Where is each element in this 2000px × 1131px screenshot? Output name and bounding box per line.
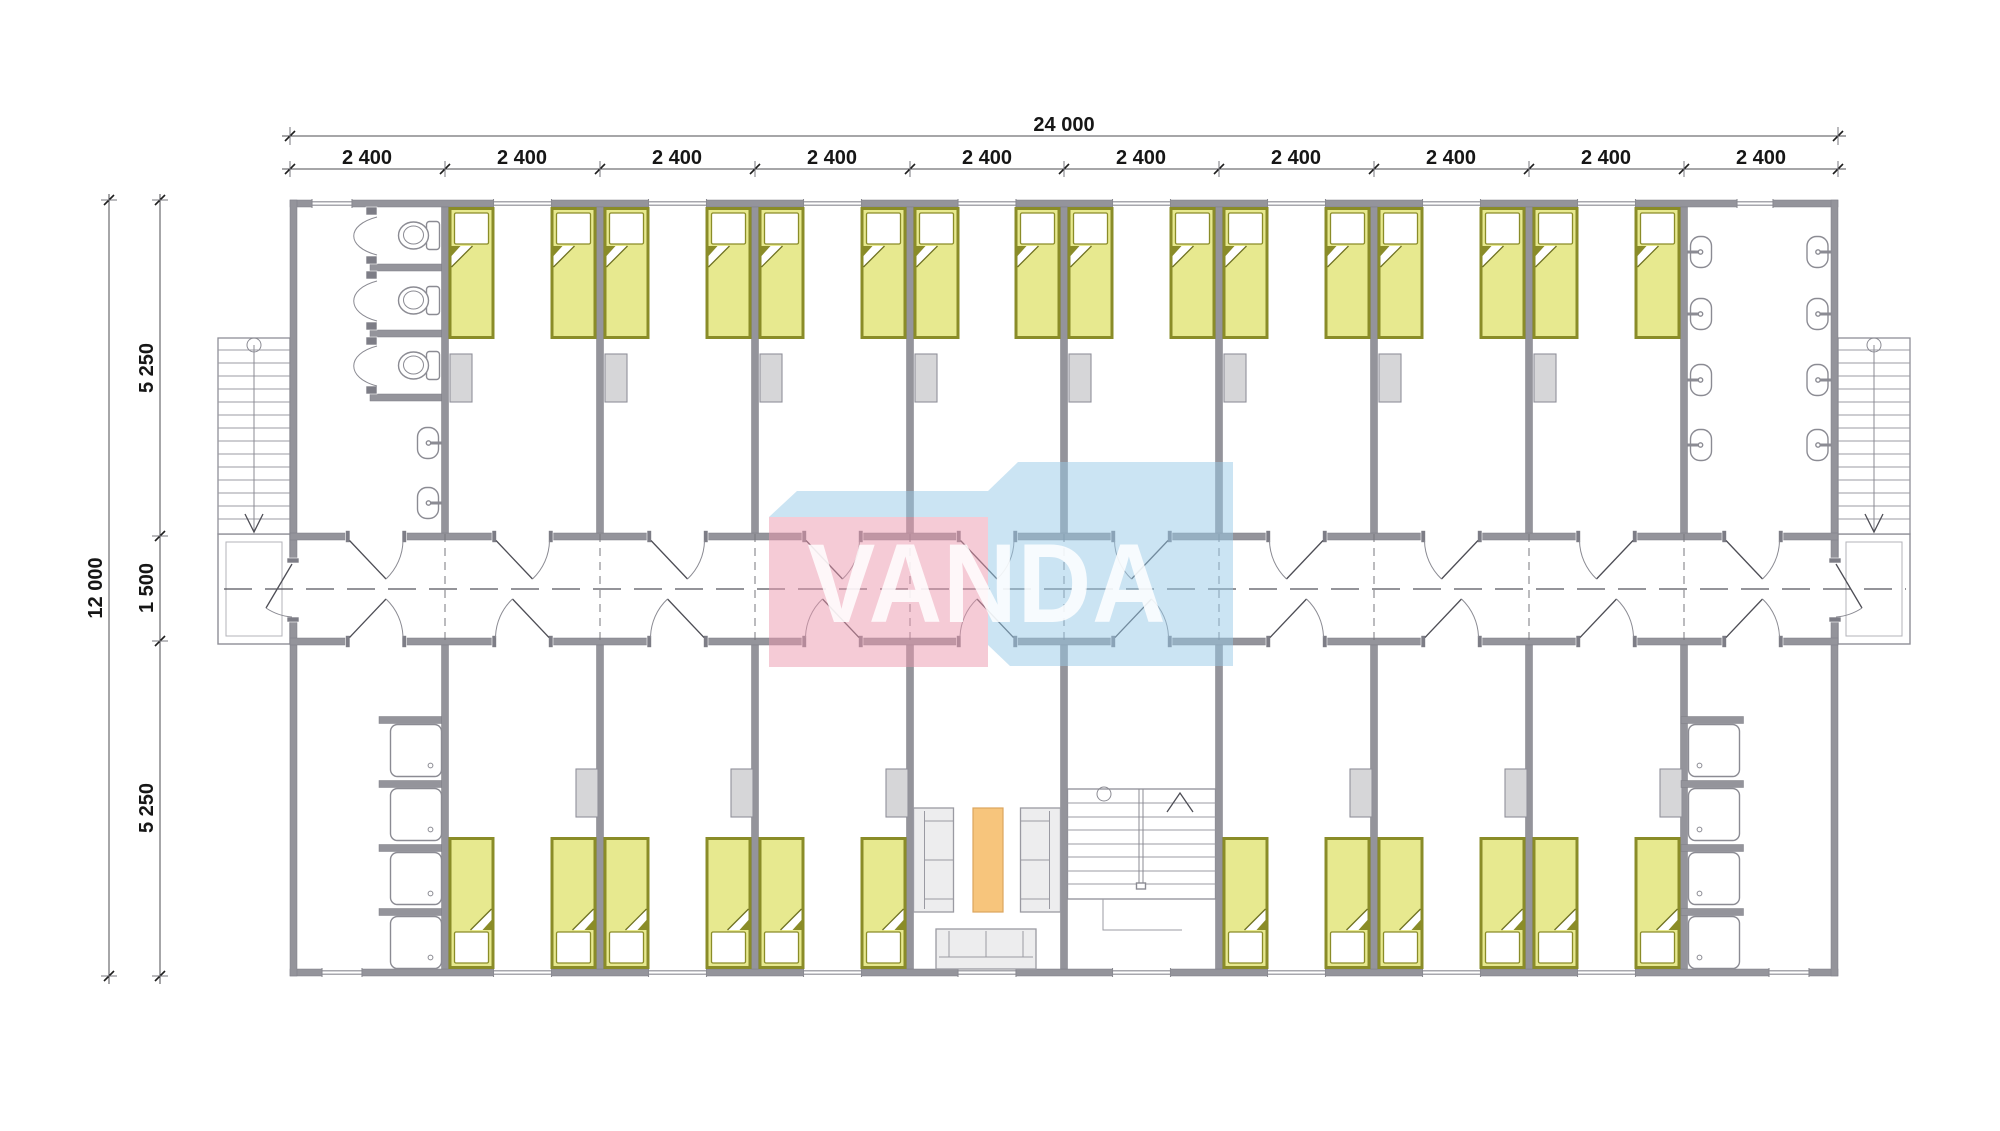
bed bbox=[1480, 207, 1526, 339]
window bbox=[1423, 968, 1481, 977]
window bbox=[1578, 968, 1636, 977]
external-staircase-left bbox=[218, 338, 290, 534]
bed bbox=[449, 207, 495, 339]
toilet-icon bbox=[399, 352, 440, 380]
wash-basin-icon bbox=[1807, 237, 1831, 268]
vanda-watermark: VANDA bbox=[769, 462, 1233, 667]
bed bbox=[551, 837, 597, 969]
wash-basin-icon bbox=[1688, 237, 1712, 268]
sofa bbox=[1021, 808, 1061, 912]
window bbox=[649, 968, 707, 977]
external-staircase-right bbox=[1838, 338, 1910, 534]
bed bbox=[861, 207, 907, 339]
dim-module: 2 400 bbox=[1736, 147, 1786, 169]
bed bbox=[1325, 207, 1371, 339]
bed bbox=[706, 207, 752, 339]
watermark-text: VANDA bbox=[807, 521, 1166, 647]
shower-tray bbox=[1689, 789, 1740, 841]
shower-tray bbox=[391, 789, 442, 841]
sofa bbox=[914, 808, 954, 912]
bed bbox=[1223, 837, 1269, 969]
bed bbox=[551, 207, 597, 339]
dim-module: 2 400 bbox=[962, 147, 1012, 169]
bedside-locker bbox=[1505, 769, 1527, 817]
bedside-locker bbox=[886, 769, 908, 817]
bedside-locker bbox=[915, 354, 937, 402]
window bbox=[312, 199, 352, 208]
window bbox=[1268, 199, 1326, 208]
dim-module: 2 400 bbox=[1426, 147, 1476, 169]
dim-module: 2 400 bbox=[807, 147, 857, 169]
bedside-locker bbox=[1534, 354, 1556, 402]
wash-basin-icon bbox=[418, 488, 442, 519]
bed bbox=[1015, 207, 1061, 339]
bed bbox=[759, 837, 805, 969]
window bbox=[1578, 199, 1636, 208]
shower-tray bbox=[1689, 725, 1740, 777]
bedside-locker bbox=[1379, 354, 1401, 402]
bed bbox=[1068, 207, 1114, 339]
bed bbox=[604, 837, 650, 969]
floor-plan-page: 24 000 2 400 2 400 2 400 2 400 2 400 2 4… bbox=[0, 0, 2000, 1131]
bedside-locker bbox=[1224, 354, 1246, 402]
bedside-locker bbox=[576, 769, 598, 817]
dim-module: 2 400 bbox=[1581, 147, 1631, 169]
dim-module: 2 400 bbox=[342, 147, 392, 169]
shower-tray bbox=[391, 725, 442, 777]
window bbox=[958, 199, 1016, 208]
window bbox=[494, 199, 552, 208]
sofa bbox=[936, 929, 1036, 969]
bed bbox=[1325, 837, 1371, 969]
dim-band: 5 250 bbox=[136, 343, 158, 393]
bed bbox=[706, 837, 752, 969]
window bbox=[1113, 968, 1171, 977]
wash-basin-icon bbox=[1688, 299, 1712, 330]
bedside-locker bbox=[1350, 769, 1372, 817]
bedside-locker bbox=[450, 354, 472, 402]
window bbox=[1737, 199, 1773, 208]
toilet-icon bbox=[399, 222, 440, 250]
window bbox=[494, 968, 552, 977]
window bbox=[1423, 199, 1481, 208]
wash-basin-icon bbox=[1807, 299, 1831, 330]
dim-module: 2 400 bbox=[497, 147, 547, 169]
bedside-locker bbox=[1069, 354, 1091, 402]
bed bbox=[604, 207, 650, 339]
shower-tray bbox=[1689, 917, 1740, 969]
floor-plan: 24 000 2 400 2 400 2 400 2 400 2 400 2 4… bbox=[0, 0, 2000, 1131]
bed bbox=[914, 207, 960, 339]
window bbox=[804, 199, 862, 208]
dim-total-depth: 12 000 bbox=[85, 557, 107, 618]
window bbox=[649, 199, 707, 208]
bed bbox=[1635, 207, 1681, 339]
toilet-icon bbox=[399, 287, 440, 315]
window bbox=[322, 968, 362, 977]
wash-basin-icon bbox=[1688, 430, 1712, 461]
dim-band: 1 500 bbox=[136, 563, 158, 613]
bedside-locker bbox=[731, 769, 753, 817]
bed bbox=[1533, 207, 1579, 339]
shower-tray bbox=[391, 853, 442, 905]
bedside-locker bbox=[760, 354, 782, 402]
dim-module: 2 400 bbox=[652, 147, 702, 169]
bed bbox=[1480, 837, 1526, 969]
bed bbox=[1223, 207, 1269, 339]
dim-band: 5 250 bbox=[136, 783, 158, 833]
bed bbox=[759, 207, 805, 339]
bed bbox=[1378, 207, 1424, 339]
dim-total-width: 24 000 bbox=[1033, 114, 1094, 136]
wash-basin-icon bbox=[1688, 365, 1712, 396]
dim-module: 2 400 bbox=[1271, 147, 1321, 169]
wash-basin-icon bbox=[1807, 365, 1831, 396]
window bbox=[1113, 199, 1171, 208]
window bbox=[1769, 968, 1809, 977]
bed bbox=[1533, 837, 1579, 969]
shower-tray bbox=[391, 917, 442, 969]
wash-basin-icon bbox=[418, 428, 442, 459]
bedside-locker bbox=[605, 354, 627, 402]
bed bbox=[1635, 837, 1681, 969]
bed bbox=[1378, 837, 1424, 969]
bed bbox=[861, 837, 907, 969]
wash-basin-icon bbox=[1807, 430, 1831, 461]
coffee-table bbox=[973, 808, 1003, 912]
bed bbox=[1170, 207, 1216, 339]
window bbox=[1268, 968, 1326, 977]
bed bbox=[449, 837, 495, 969]
bedside-locker bbox=[1660, 769, 1682, 817]
shower-tray bbox=[1689, 853, 1740, 905]
window bbox=[804, 968, 862, 977]
dim-module: 2 400 bbox=[1116, 147, 1166, 169]
